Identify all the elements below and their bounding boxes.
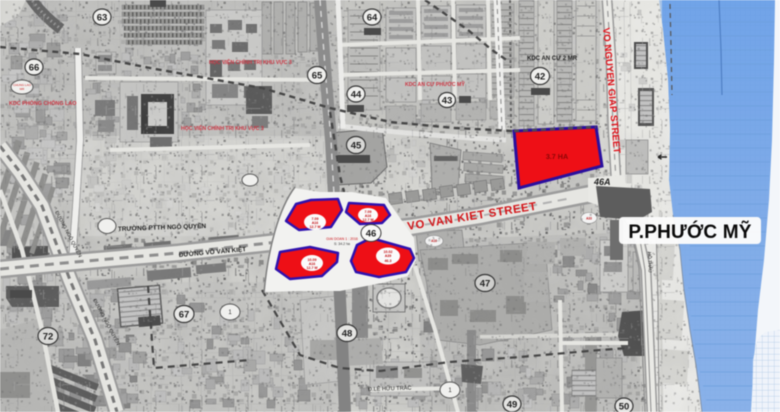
svg-text:45: 45 — [351, 141, 362, 152]
svg-text:KDC AN CƯ 2 MR: KDC AN CƯ 2 MR — [527, 56, 578, 62]
svg-text:46: 46 — [366, 229, 377, 240]
svg-text:42: 42 — [535, 72, 546, 83]
svg-text:46.3: 46.3 — [385, 259, 392, 263]
svg-text:43: 43 — [442, 96, 453, 107]
svg-text:3.7 HA: 3.7 HA — [546, 152, 568, 161]
svg-text:KDC AN CƯ PHƯỚC MỸ: KDC AN CƯ PHƯỚC MỸ — [405, 80, 465, 88]
svg-text:44: 44 — [351, 90, 362, 101]
svg-text:HỌC VIỆN CHÍNH TRỊ KHU VỰC 3: HỌC VIỆN CHÍNH TRỊ KHU VỰC 3 — [209, 58, 292, 66]
svg-text:A39: A39 — [385, 254, 392, 258]
svg-text:66: 66 — [29, 63, 40, 74]
svg-text:47: 47 — [480, 279, 491, 290]
svg-text:67: 67 — [179, 310, 190, 321]
svg-text:HỒ THẤU: HỒ THẤU — [647, 252, 654, 273]
svg-text:S: 34.2 ha: S: 34.2 ha — [334, 242, 350, 246]
svg-text:P.PHƯỚC MỸ: P.PHƯỚC MỸ — [628, 221, 751, 243]
svg-text:48: 48 — [342, 329, 353, 340]
svg-text:49: 49 — [507, 400, 518, 411]
svg-text:12.7 M: 12.7 M — [310, 225, 321, 229]
svg-text:12.7 M: 12.7 M — [363, 218, 374, 222]
svg-text:64: 64 — [367, 13, 378, 24]
svg-text:63: 63 — [97, 13, 108, 24]
svg-text:65: 65 — [312, 71, 323, 82]
svg-text:GIAI DOAN 1 : 2016: GIAI DOAN 1 : 2016 — [326, 237, 358, 241]
svg-text:12.7 M: 12.7 M — [307, 266, 318, 270]
svg-text:HỌC VIỆN CHÍNH TRỊ KHU VỰC 3: HỌC VIỆN CHÍNH TRỊ KHU VỰC 3 — [181, 124, 264, 132]
svg-text:72: 72 — [43, 332, 54, 343]
svg-text:50: 50 — [619, 402, 630, 412]
svg-text:46A: 46A — [593, 177, 611, 187]
svg-text:MR: MR — [20, 87, 25, 91]
svg-text:KDC PHÒNG CHỐNG LAO: KDC PHÒNG CHỐNG LAO — [9, 99, 76, 107]
